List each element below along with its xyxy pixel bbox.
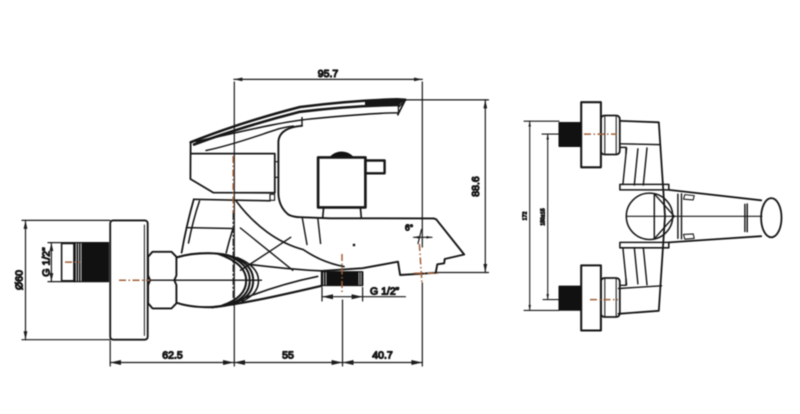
svg-text:150±15: 150±15 xyxy=(541,208,547,225)
svg-text:172: 172 xyxy=(523,212,529,221)
svg-text:95.7: 95.7 xyxy=(318,68,339,80)
svg-text:Ø60: Ø60 xyxy=(14,270,26,290)
svg-text:62.5: 62.5 xyxy=(162,350,183,362)
svg-text:55: 55 xyxy=(282,350,294,362)
svg-text:6°: 6° xyxy=(405,223,413,233)
svg-text:G 1/2”: G 1/2” xyxy=(41,247,53,277)
svg-text:40.7: 40.7 xyxy=(372,350,393,362)
svg-text:88.6: 88.6 xyxy=(470,176,482,197)
svg-text:G 1/2”: G 1/2” xyxy=(370,285,400,297)
